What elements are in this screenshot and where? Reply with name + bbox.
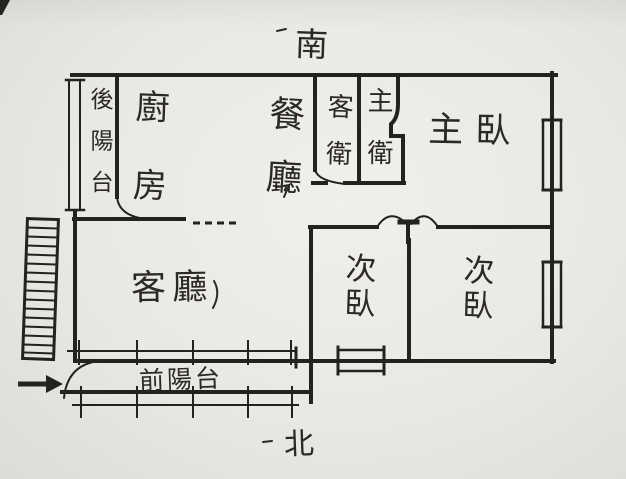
stairs-icon xyxy=(23,219,59,360)
tick-near-south xyxy=(277,29,286,31)
room-label-bedroom2-right: 次臥 xyxy=(458,253,491,323)
room-label-bedroom2-left: 次臥 xyxy=(340,251,373,321)
room-label-kitchen: 廚房 xyxy=(127,88,166,245)
compass-north-label: 北 xyxy=(283,429,314,460)
room-label-living-room: 客廳 xyxy=(131,270,214,306)
back-balcony-railing-icon xyxy=(66,80,84,210)
floorplan-page: 南 北 後陽台 廚房 餐廳 客衛 主衛 主臥 客廳 次臥 次臥 前陽台 xyxy=(0,0,626,479)
tick-near-north xyxy=(263,441,272,442)
room-label-master-bath: 主衛 xyxy=(365,87,391,191)
entrance-arrow-icon xyxy=(18,375,63,393)
pen-marks xyxy=(213,29,289,442)
room-label-dining: 餐廳 xyxy=(260,94,303,222)
floorplan-drawing xyxy=(0,0,626,479)
door-arc-icon xyxy=(64,170,438,398)
room-label-front-balcony: 前陽台 xyxy=(139,366,224,394)
compass-south-label: 南 xyxy=(294,27,328,61)
scan-smudge xyxy=(0,0,10,15)
room-label-guest-bath: 客衛 xyxy=(322,93,351,187)
room-label-back-balcony: 後陽台 xyxy=(87,87,110,211)
room-label-master-bedroom: 主臥 xyxy=(428,113,523,150)
